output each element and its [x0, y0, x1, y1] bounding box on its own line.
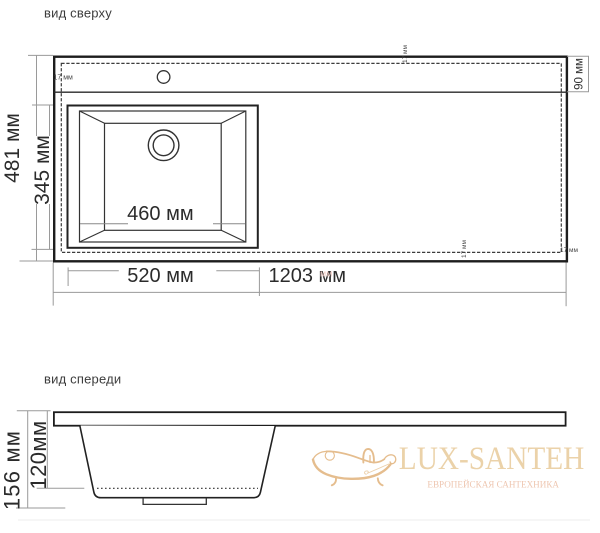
svg-text:460 мм: 460 мм — [127, 203, 193, 225]
svg-text:156 мм: 156 мм — [0, 430, 25, 510]
svg-text:481 мм: 481 мм — [1, 113, 24, 183]
svg-text:17 мм: 17 мм — [54, 75, 74, 82]
svg-text:ЕВРОПЕЙСКАЯ САНТЕХНИКА: ЕВРОПЕЙСКАЯ САНТЕХНИКА — [427, 478, 559, 490]
svg-text:мм: мм — [320, 269, 332, 279]
svg-text:вид спереди: вид спереди — [44, 372, 121, 387]
svg-text:вид сверху: вид сверху — [44, 6, 112, 21]
svg-text:LUX-SANTEH: LUX-SANTEH — [399, 441, 585, 477]
svg-text:520 мм: 520 мм — [127, 265, 193, 287]
svg-text:17 мм: 17 мм — [402, 44, 409, 63]
svg-text:120мм: 120мм — [26, 421, 51, 490]
svg-text:17 мм: 17 мм — [461, 239, 468, 258]
svg-text:345 мм: 345 мм — [31, 135, 54, 205]
svg-text:1203 мм: 1203 мм — [269, 265, 347, 287]
svg-text:17 мм: 17 мм — [560, 247, 579, 254]
svg-text:90 мм: 90 мм — [574, 58, 586, 90]
